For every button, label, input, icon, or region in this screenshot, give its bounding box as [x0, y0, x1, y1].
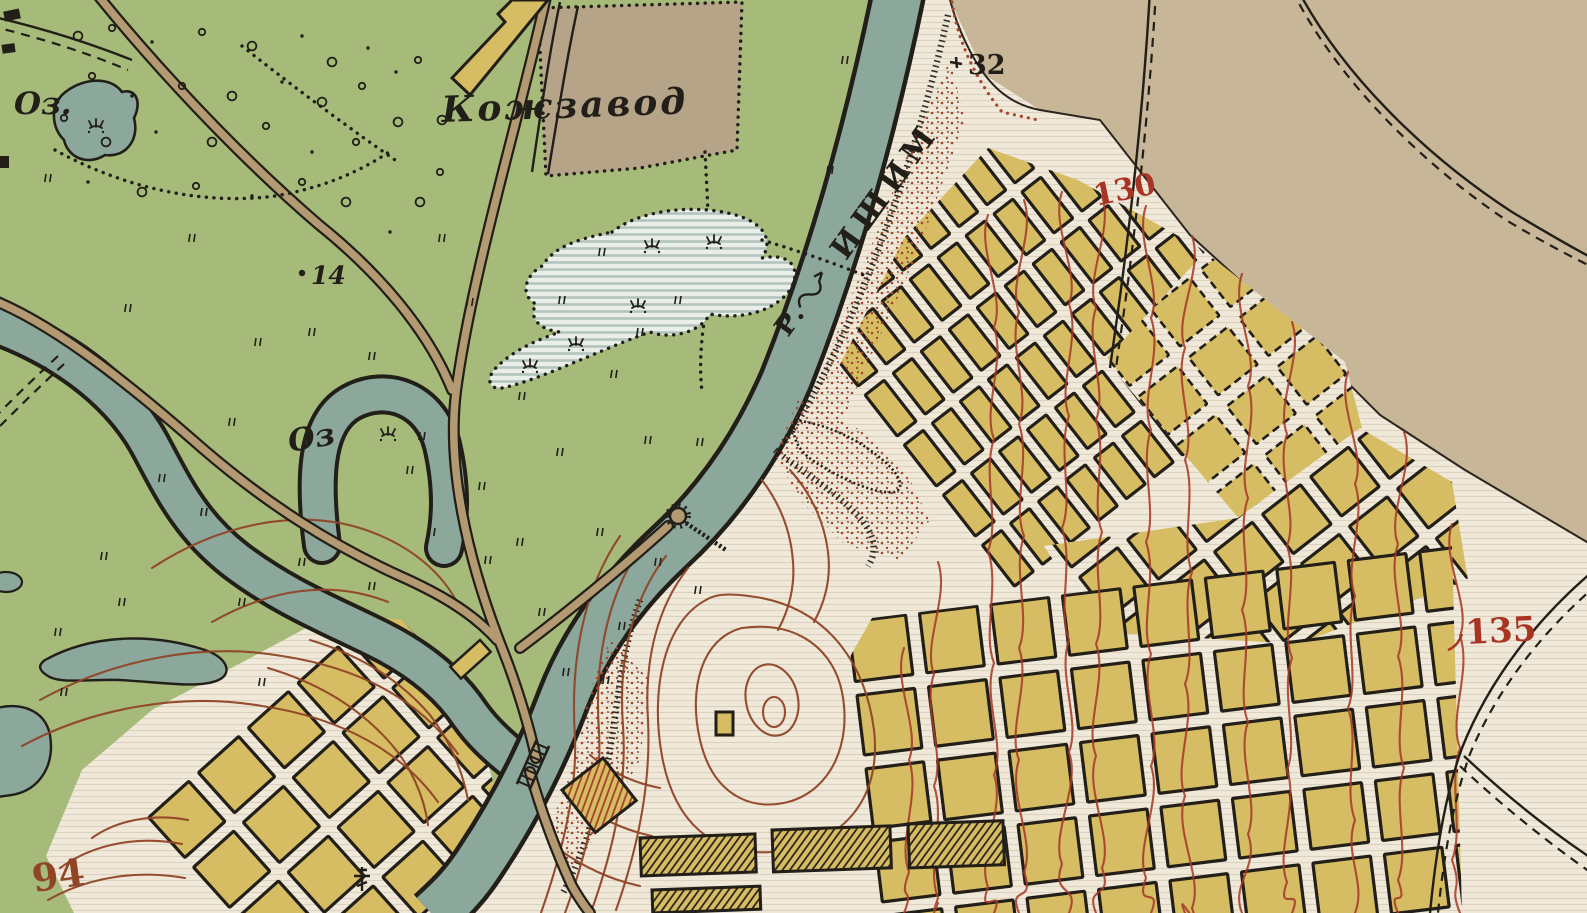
hut	[0, 156, 9, 168]
hatched-row	[772, 826, 891, 872]
building	[716, 712, 733, 735]
lake-label: Оз.	[14, 86, 72, 122]
factory-label: Кожзавод	[440, 80, 689, 131]
svg-text:14: 14	[311, 261, 346, 290]
hatched-row	[652, 886, 761, 913]
pond	[0, 572, 22, 592]
svg-text:32: 32	[968, 50, 1006, 81]
spot-dot-icon	[299, 270, 305, 276]
map-canvas[interactable]: Кожзавод Р. ИШИМ Оз. Оз 32 14 130 135 94	[0, 0, 1587, 913]
hatched-row	[908, 821, 1004, 868]
topographic-map: Кожзавод Р. ИШИМ Оз. Оз 32 14 130 135 94	[0, 0, 1587, 913]
svg-text:135: 135	[1464, 609, 1537, 653]
hut	[2, 43, 16, 54]
hatched-row	[640, 834, 756, 876]
contour-label: 94	[29, 849, 88, 901]
